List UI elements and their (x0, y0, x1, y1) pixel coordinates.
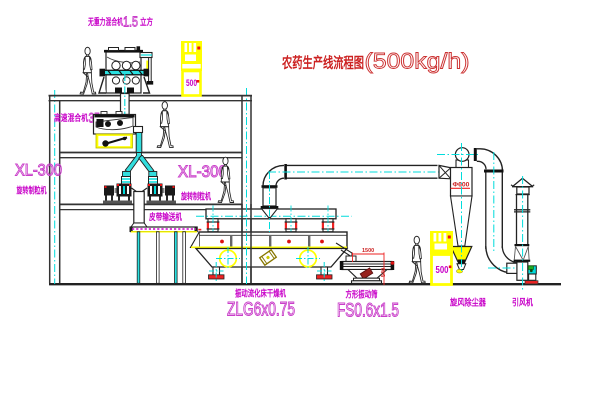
svg-text:高速混合机: 高速混合机 (54, 112, 88, 123)
svg-text:XL-300: XL-300 (15, 161, 62, 180)
svg-text:ZLG6x0.75: ZLG6x0.75 (227, 300, 295, 321)
svg-text:立方: 立方 (140, 16, 153, 27)
svg-text:农药生产线流程图: 农药生产线流程图 (281, 54, 364, 72)
svg-text:旋风除尘器: 旋风除尘器 (449, 297, 487, 308)
svg-text:1.5: 1.5 (123, 14, 138, 31)
svg-text:500: 500 (436, 265, 449, 276)
svg-text:方形振动筛: 方形振动筛 (346, 289, 378, 300)
svg-text:无重力混合机: 无重力混合机 (87, 16, 123, 27)
svg-text:1500: 1500 (362, 248, 374, 254)
svg-text:500: 500 (186, 78, 197, 88)
svg-text:引风机: 引风机 (512, 297, 533, 308)
svg-text:FS0.6x1.5: FS0.6x1.5 (337, 301, 399, 322)
svg-text:540: 540 (381, 268, 387, 277)
svg-text:振动流化床干燥机: 振动流化床干燥机 (235, 288, 286, 299)
svg-text:XL-300: XL-300 (178, 162, 227, 181)
svg-text:旋转制粒机: 旋转制粒机 (180, 191, 211, 202)
svg-text:(500kg/h): (500kg/h) (365, 49, 470, 74)
svg-text:皮带输送机: 皮带输送机 (148, 211, 182, 222)
svg-text:旋转制粒机: 旋转制粒机 (16, 185, 47, 196)
